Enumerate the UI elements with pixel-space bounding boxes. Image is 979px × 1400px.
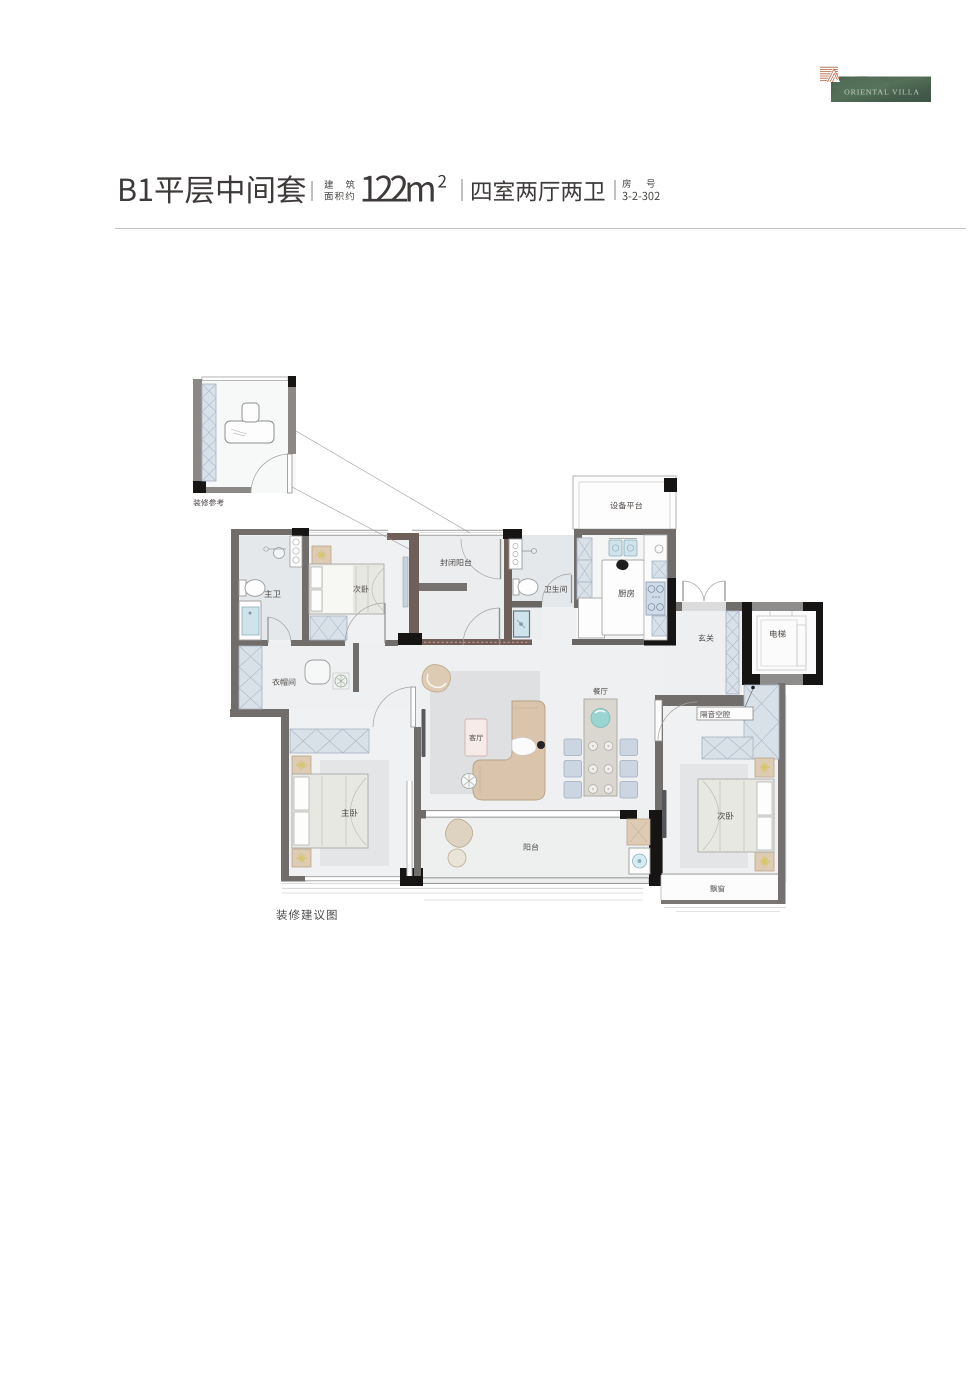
svg-text:ORIENTAL VILLA: ORIENTAL VILLA: [844, 88, 920, 97]
